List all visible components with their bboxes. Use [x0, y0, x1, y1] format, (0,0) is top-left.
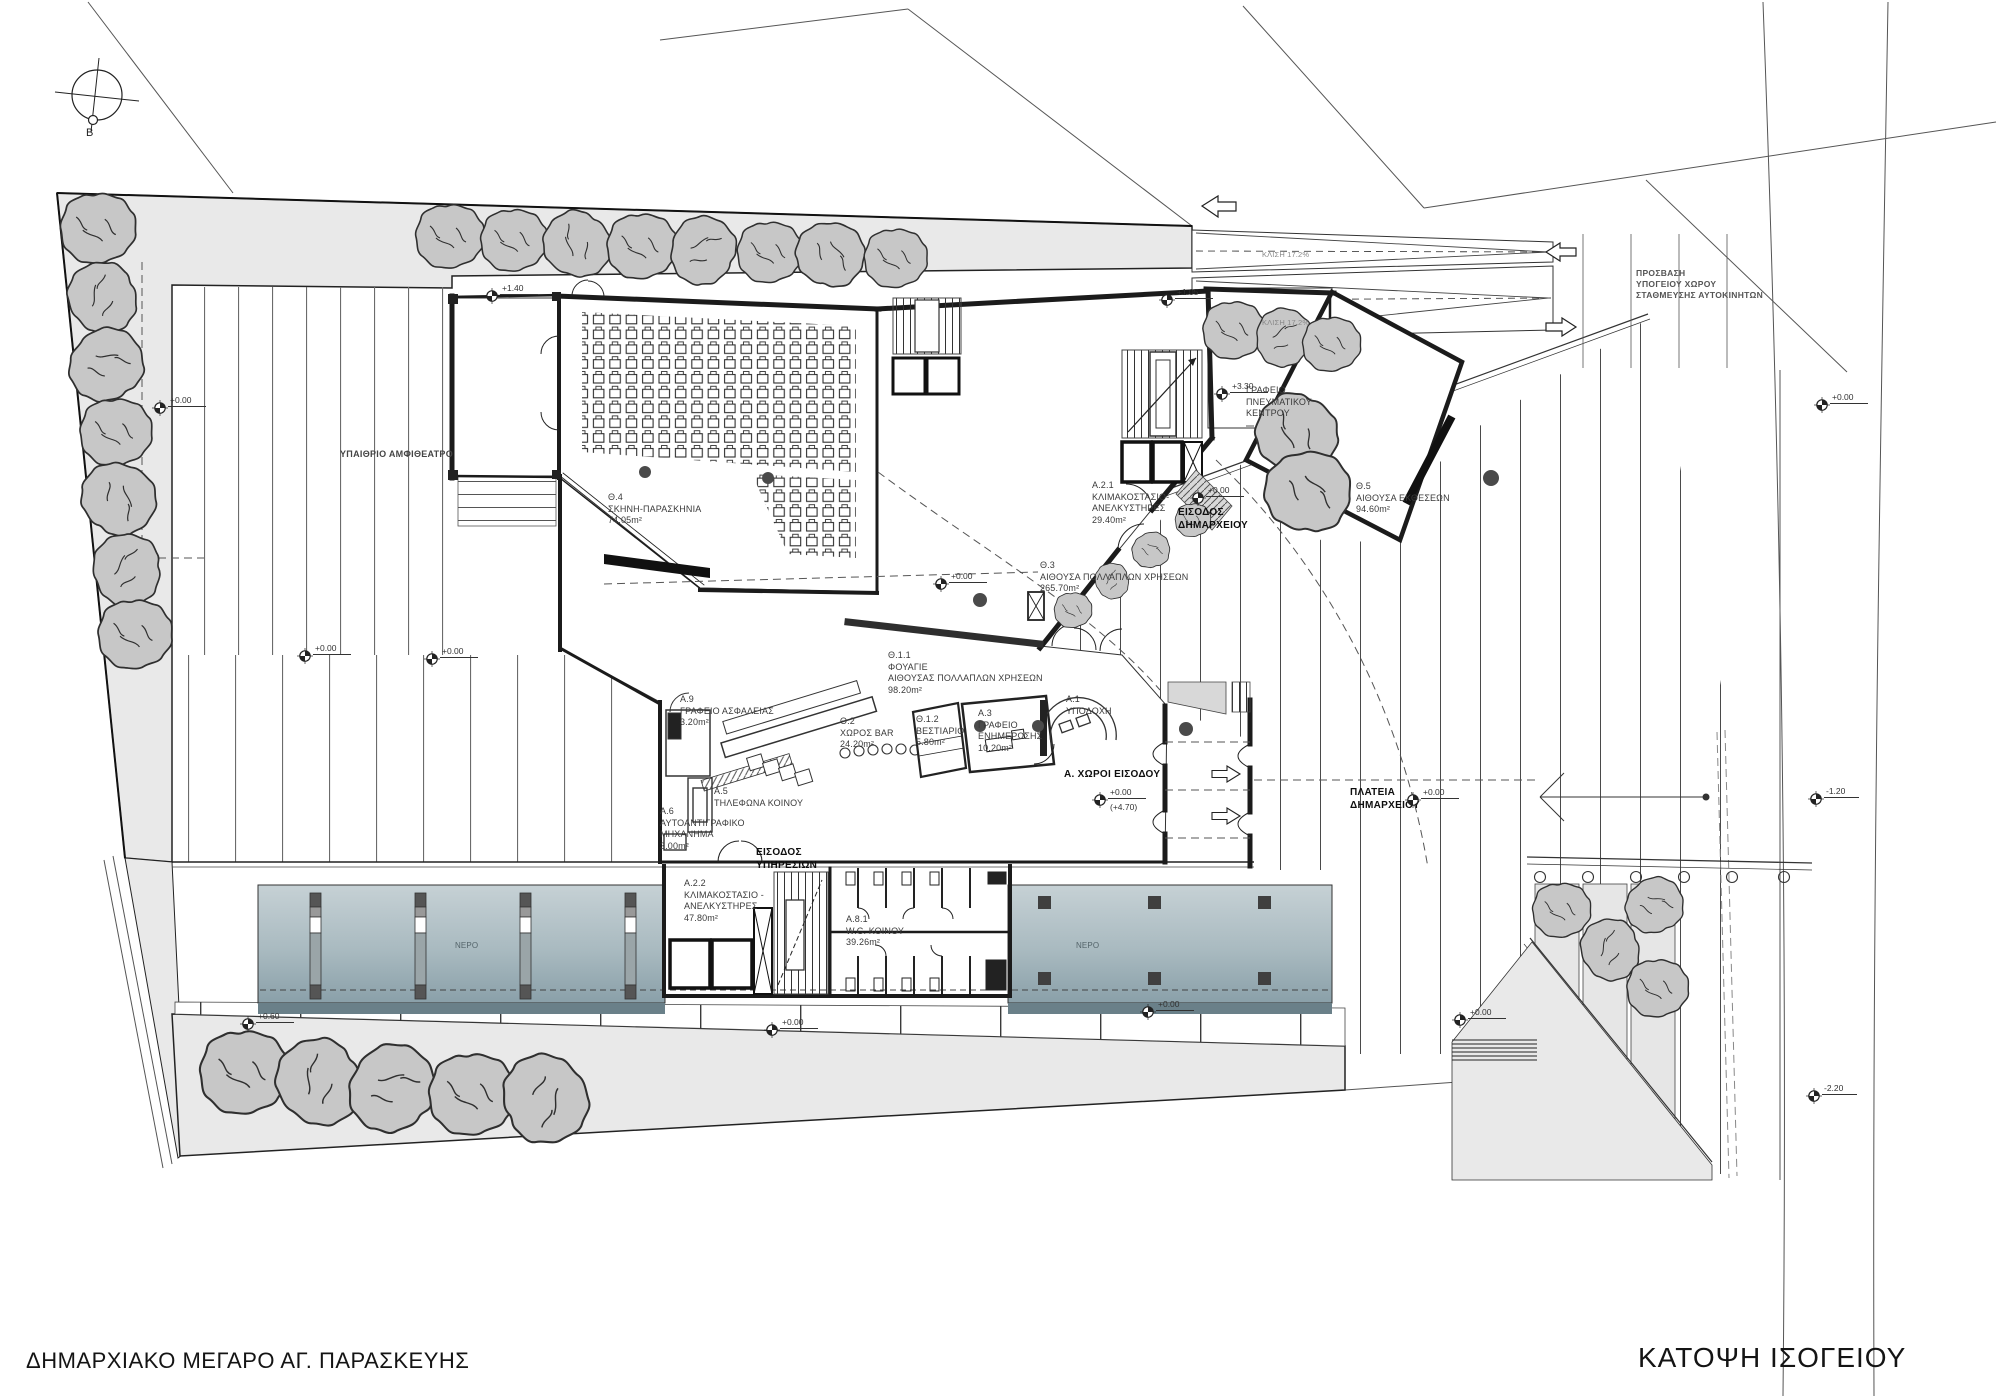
tree-icon — [737, 222, 802, 282]
tree-icon — [200, 1031, 289, 1113]
tree-icon — [1054, 593, 1092, 628]
floor-plan-sheet: ΒΥΠΑΙΘΡΙΟ ΑΜΦΙΘΕΑΤΡΟΘ.4 ΣΚΗΝΗ-ΠΑΡΑΣΚΗΝΙΑ… — [0, 0, 2000, 1400]
tree-icon — [607, 214, 677, 279]
tree-icon — [429, 1054, 516, 1135]
stair-core-a21 — [1122, 350, 1202, 482]
drawing-title: ΚΑΤΟΨΗ ΙΣΟΓΕΙΟΥ — [1638, 1342, 1906, 1374]
project-title: ΔΗΜΑΡΧΙΑΚΟ ΜΕΓΑΡΟ ΑΓ. ΠΑΡΑΣΚΕΥΗΣ — [26, 1348, 469, 1374]
tree-icon — [1302, 317, 1360, 371]
tree-icon — [864, 229, 927, 287]
floor-plan-drawing — [0, 0, 2000, 1400]
tree-icon — [1203, 302, 1265, 359]
tree-icon — [481, 210, 547, 272]
tree-icon — [80, 399, 152, 466]
tree-icon — [1627, 960, 1689, 1017]
tree-icon — [60, 194, 135, 264]
stair-core-north — [893, 298, 961, 394]
entry-arrow-icons — [1212, 766, 1240, 824]
tree-icon — [93, 534, 160, 606]
tree-icon — [416, 205, 485, 268]
tree-icon — [1175, 504, 1211, 537]
tree-icon — [98, 600, 172, 669]
tree-icon — [1532, 883, 1590, 937]
north-compass-icon — [55, 58, 139, 132]
cloakroom — [913, 703, 966, 777]
stair-core-south — [670, 872, 828, 994]
